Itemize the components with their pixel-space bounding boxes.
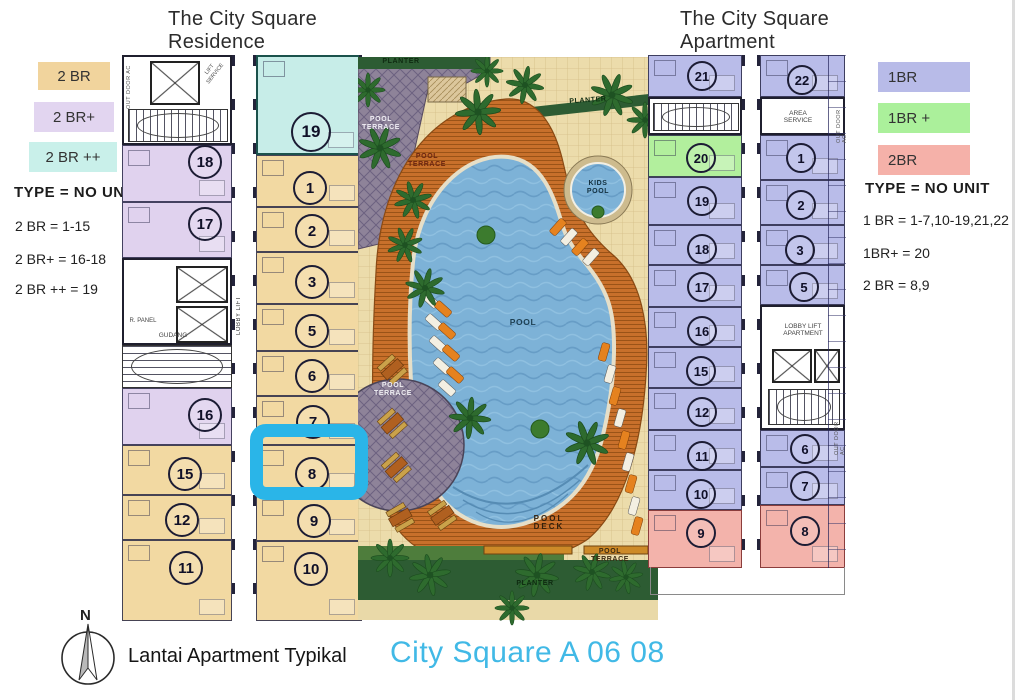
stair-rail-icon [777,393,831,421]
residence-stairs-top [128,109,228,142]
r-panel-label: R. PANEL [128,318,158,325]
apartment-type-line1: 1 BR = 1-7,10-19,21,22 [863,212,1009,228]
residence-unit-19: 19 [256,55,362,155]
residence-type-heading: TYPE = NO UNIT [14,184,139,201]
unit-number-17a: 17 [687,272,717,302]
apartment-unit-17: 17 [648,265,742,307]
residence-unit-18: 18 [122,145,232,202]
unit-number-8a: 8 [790,516,820,546]
unit-number-17: 17 [188,207,222,241]
residence-title: The City Square Residence [168,8,317,54]
corridor-wall-ticks [232,55,235,621]
residence-type-line2: 2 BR+ = 16-18 [15,251,106,267]
lobby-lift-apartment-label: LOBBY LIFT APARTMENT [772,323,834,337]
service-lift-icon [150,61,200,105]
unit-number-15a: 15 [686,356,716,386]
unit-number-18a: 18 [687,234,717,264]
lift-service-label: LIFT SERVICE [197,54,229,89]
unit-number-11a: 11 [687,441,717,471]
out-door-ac-label-right2: OUT DOOR AC [834,415,846,455]
unit-number-12: 12 [165,503,199,537]
apartment-unit-16: 16 [648,307,742,347]
unit-number-2: 2 [295,214,329,248]
planter-label-top: PLANTER [368,58,434,66]
unit-number-9a: 9 [686,518,716,548]
unit-number-3: 3 [295,265,329,299]
apartment-stairs [653,103,739,131]
residence-title-line1: The City Square [168,8,317,31]
residence-core-top: OUT DOOR AC LIFT SERVICE [122,55,232,145]
unit-number-16: 16 [188,398,222,432]
legend-swatch-2br: 2 BR [38,62,110,90]
apartment-unit-21: 21 [648,55,742,97]
apartment-unit-10: 10 [648,470,742,510]
legend-label-1brplus: 1BR + [888,110,930,127]
apartment-unit-18: 18 [648,225,742,265]
residence-unit-11: 11 [122,540,232,621]
unit-number-2a: 2 [786,190,816,220]
plan-title: City Square A 06 08 [390,636,665,670]
residence-unit-10: 10 [256,541,362,621]
unit-number-20: 20 [686,143,716,173]
apartment-unit-11: 11 [648,430,742,470]
lobby-lift-label: LOBBY LIFT [236,273,242,335]
unit-number-5: 5 [295,314,329,348]
residence-type-line3: 2 BR ++ = 19 [15,281,98,297]
gudang-label: GUDANG [150,332,196,339]
corridor-wall-ticks [742,55,745,568]
residence-unit-6: 6 [256,351,362,396]
legend-swatch-2brplusplus: 2 BR ++ [29,142,117,172]
floor-caption: Lantai Apartment Typikal [128,645,347,668]
unit-number-19: 19 [291,112,331,152]
legend-label-2brplusplus: 2 BR ++ [45,149,100,166]
residence-unit-9: 9 [256,495,362,541]
apartment-stairs-core [648,97,742,135]
unit-number-6: 6 [295,359,329,393]
pool-terrace-label-deck: POOL TERRACE [400,153,454,169]
residence-unit-1: 1 [256,155,362,207]
residence-unit-17: 17 [122,202,232,258]
kids-pool-label: KIDS POOL [580,180,616,196]
unit-number-1: 1 [293,171,327,205]
apartment-unit-19: 19 [648,177,742,225]
apartment-lift-icon-1 [772,349,812,383]
residence-building: OUT DOOR AC LIFT SERVICE 18 17 R. PANEL … [122,55,362,621]
legend-swatch-1brplus: 1BR + [878,103,970,133]
out-door-ac-label-right1: OUT DOOR AC [836,103,848,143]
unit-number-15: 15 [168,457,202,491]
apartment-unit-20: 20 [648,135,742,177]
pool-courtyard-map [358,57,658,627]
legend-label-2brplus: 2 BR+ [53,109,95,126]
unit-number-16a: 16 [687,316,717,346]
highlighted-unit-8-marker [250,424,368,500]
floor-plan-page: The City Square Residence The City Squar… [0,0,1015,700]
unit-number-21: 21 [687,61,717,91]
residence-title-line2: Residence [168,31,317,54]
legend-label-2br: 2 BR [57,68,90,85]
legend-label-2br-apt: 2BR [888,152,917,169]
residence-unit-16: 16 [122,388,232,445]
legend-label-1br: 1BR [888,69,917,86]
unit-number-1a: 1 [786,143,816,173]
planter-label-bottom: PLANTER [505,580,565,588]
apartment-unit-9: 9 [648,510,742,568]
pool-terrace-label-bottomright: POOL TERRACE [584,548,636,564]
residence-unit-15: 15 [122,445,232,495]
unit-number-3a: 3 [785,235,815,265]
unit-number-7a: 7 [790,471,820,501]
unit-number-22: 22 [787,65,817,95]
unit-number-10a: 10 [686,479,716,509]
legend-swatch-2br-apt: 2BR [878,145,970,175]
apartment-unit-12: 12 [648,388,742,430]
apartment-unit-15: 15 [648,347,742,388]
apartment-lower-wall-outline [650,567,845,595]
unit-number-12a: 12 [687,397,717,427]
compass-icon [58,622,118,688]
residence-unit-5: 5 [256,304,362,351]
unit-number-9: 9 [297,504,331,538]
apartment-title: The City Square Apartment [680,8,829,54]
pool-terrace-label-topleft: POOL TERRACE [356,116,406,132]
apartment-type-line2: 1BR+ = 20 [863,245,930,261]
apartment-building: 21 20 19 18 17 16 15 12 11 10 9 2 [648,55,845,568]
pool-deck-label: POOL DECK [518,515,580,531]
residence-unit-2: 2 [256,207,362,252]
unit-number-10: 10 [294,552,328,586]
unit-number-6a: 6 [790,434,820,464]
area-service-label: AREA SERVICE [776,110,820,124]
unit-number-18: 18 [188,145,222,179]
residence-stairs-mid [122,345,232,388]
lobby-lift-icon-1 [176,266,228,303]
stair-rail-icon [662,107,730,127]
pool-terrace-label-terrace-circle: POOL TERRACE [370,382,416,398]
stair-rail-icon [137,113,219,138]
apartment-type-heading: TYPE = NO UNIT [865,180,990,197]
unit-number-19a: 19 [687,186,717,216]
legend-swatch-2brplus: 2 BR+ [34,102,114,132]
legend-swatch-1br: 1BR [878,62,970,92]
unit-number-5a: 5 [789,272,819,302]
apartment-type-line3: 2 BR = 8,9 [863,277,930,293]
apartment-title-line2: Apartment [680,31,829,54]
stair-rail-icon [131,349,223,384]
residence-unit-3: 3 [256,252,362,304]
residence-unit-12: 12 [122,495,232,540]
pool-label: POOL [505,318,541,326]
out-door-ac-label: OUT DOOR AC [126,65,132,109]
unit-number-11: 11 [169,551,203,585]
apartment-title-line1: The City Square [680,8,829,31]
residence-type-line1: 2 BR = 1-15 [15,218,90,234]
